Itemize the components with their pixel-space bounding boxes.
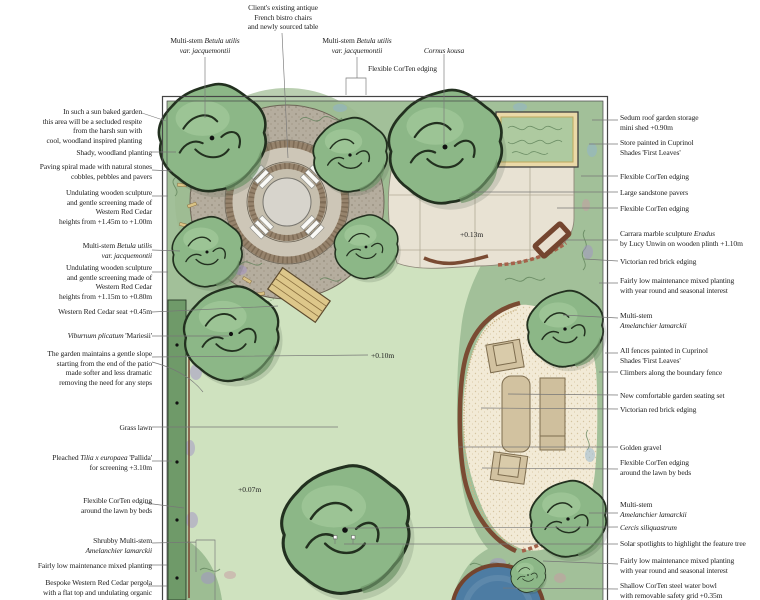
level-measurement: +0.10m	[371, 351, 394, 360]
label-italic: Viburnum plicatum	[68, 331, 126, 340]
label-betula-top-right: Multi-stem Betula utilis var. jacquemont…	[322, 36, 391, 55]
label-seating-set: New comfortable garden seating set	[620, 391, 724, 401]
label-carrara-sculpture: Carrara marble sculpture Eradus by Lucy …	[620, 229, 743, 248]
label-text2: 'Mariesii'	[125, 331, 152, 340]
label-text: Flexible CorTen edging	[620, 204, 689, 213]
label-pleached-tilia: Pleached Tilia x europaea 'Pallida' for …	[52, 453, 152, 472]
label-text: Pleached	[52, 453, 80, 462]
label-viburnum: Viburnum plicatum 'Mariesii'	[68, 331, 152, 341]
label-text: Paving spiral made with natural stones c…	[40, 162, 152, 181]
label-text: Fairly low maintenance mixed planting wi…	[620, 276, 734, 295]
label-text: New comfortable garden seating set	[620, 391, 724, 400]
label-text: Flexible CorTen edging	[620, 172, 689, 181]
label-text: Climbers along the boundary fence	[620, 368, 722, 377]
label-text: Shallow CorTen steel water bowl with rem…	[620, 581, 722, 600]
label-text: Client's existing antique French bistro …	[248, 3, 318, 31]
label-text: Golden gravel	[620, 443, 661, 452]
label-betula-left: Multi-stem Betula utilis var. jacquemont…	[83, 241, 152, 260]
label-shady-woodland: Shady, woodland planting	[76, 148, 152, 158]
label-sedum-shed: Sedum roof garden storage mini shed +0.9…	[620, 113, 699, 132]
label-italic: Tilia x europaea	[80, 453, 129, 462]
label-text: Shrubby Multi-stem	[93, 536, 152, 545]
label-gentle-slope-note: The garden maintains a gentle slope star…	[47, 349, 152, 388]
label-italic: Amelanchier lamarckii	[620, 321, 687, 330]
label-text: Victorian red brick edging	[620, 257, 696, 266]
label-text: All fences painted in Cuprinol Shades 'F…	[620, 346, 708, 365]
label-wooden-sculpture-2: Undulating wooden sculpture and gentle s…	[59, 263, 152, 302]
label-cedar-pergola: Bespoke Western Red Cedar pergola with a…	[43, 578, 152, 597]
label-brick-edging-2: Victorian red brick edging	[620, 405, 696, 415]
label-text: Flexible CorTen edging	[368, 64, 437, 73]
label-grass-lawn: Grass lawn	[119, 423, 152, 433]
label-text: Multi-stem	[620, 311, 652, 320]
label-text: Undulating wooden sculpture and gentle s…	[59, 188, 152, 226]
label-italic: Cornus kousa	[424, 46, 464, 55]
label-text: Bespoke Western Red Cedar pergola with a…	[43, 578, 152, 597]
label-text: Grass lawn	[119, 423, 152, 432]
label-text: Fairly low maintenance mixed planting wi…	[620, 556, 734, 575]
label-cercis: Cercis siliquastrum	[620, 523, 677, 533]
label-text: Western Red Cedar seat +0.45m	[58, 307, 152, 316]
label-fences-paint: All fences painted in Cuprinol Shades 'F…	[620, 346, 708, 365]
label-text: Fairly low maintenance mixed planting	[38, 561, 152, 570]
label-text: Undulating wooden sculpture and gentle s…	[59, 263, 152, 301]
label-text: Victorian red brick edging	[620, 405, 696, 414]
label-climbers: Climbers along the boundary fence	[620, 368, 722, 378]
label-betula-top-left: Multi-stem Betula utilis var. jacquemont…	[170, 36, 239, 55]
label-bistro-chairs: Client's existing antique French bistro …	[248, 3, 318, 32]
label-paving-spiral: Paving spiral made with natural stones c…	[40, 162, 152, 181]
label-text: Flexible CorTen edging around the lawn b…	[620, 458, 691, 477]
label-mixed-planting-left: Fairly low maintenance mixed planting	[38, 561, 152, 571]
label-cedar-seat: Western Red Cedar seat +0.45m	[58, 307, 152, 317]
label-italic: Cercis siliquastrum	[620, 523, 677, 532]
label-text: The garden maintains a gentle slope star…	[47, 349, 152, 387]
label-text: Carrara marble sculpture	[620, 229, 694, 238]
label-text: Multi-stem	[620, 500, 652, 509]
level-measurement: +0.13m	[460, 230, 483, 239]
level-measurement: +0.07m	[238, 485, 261, 494]
label-mixed-planting-r2: Fairly low maintenance mixed planting wi…	[620, 556, 734, 575]
storage-shed	[496, 112, 578, 167]
label-corten-lawn-right: Flexible CorTen edging around the lawn b…	[620, 458, 691, 477]
label-text: Store painted in Cuprinol Shades 'First …	[620, 138, 694, 157]
label-corten-lawn-left: Flexible CorTen edging around the lawn b…	[81, 496, 152, 515]
garden-design-plan-sheet: +0.13m +0.10m +0.07m Client's existing a…	[0, 0, 760, 600]
label-wooden-sculpture-1: Undulating wooden sculpture and gentle s…	[59, 188, 152, 227]
label-solar-spotlights: Solar spotlights to highlight the featur…	[620, 539, 746, 549]
label-corten-r2: Flexible CorTen edging	[620, 204, 689, 214]
label-text2: by Lucy Unwin on wooden plinth +1.10m	[620, 239, 743, 248]
label-mixed-planting-r1: Fairly low maintenance mixed planting wi…	[620, 276, 734, 295]
label-cornus-kousa: Cornus kousa	[424, 46, 464, 56]
label-text: Multi-stem	[170, 36, 204, 45]
label-text: Multi-stem	[83, 241, 117, 250]
label-italic: Amelanchier lamarckii	[620, 510, 687, 519]
label-water-bowl: Shallow CorTen steel water bowl with rem…	[620, 581, 722, 600]
label-sandstone-pavers: Large sandstone pavers	[620, 188, 688, 198]
label-text: Multi-stem	[322, 36, 356, 45]
label-text: Sedum roof garden storage mini shed +0.9…	[620, 113, 699, 132]
label-corten-top: Flexible CorTen edging	[368, 64, 437, 74]
pleached-tilia-screen	[168, 300, 186, 600]
bistro-table	[263, 178, 311, 226]
label-amelanchier-r2: Multi-stem Amelanchier lamarckii	[620, 500, 687, 519]
label-amelanchier-r1: Multi-stem Amelanchier lamarckii	[620, 311, 687, 330]
label-text: In such a sun baked garden this area wil…	[43, 107, 142, 145]
label-italic: Eradus	[694, 229, 715, 238]
label-text: Large sandstone pavers	[620, 188, 688, 197]
label-italic: Amelanchier lamarckii	[85, 546, 152, 555]
label-brick-edging-1: Victorian red brick edging	[620, 257, 696, 267]
label-corten-r1: Flexible CorTen edging	[620, 172, 689, 182]
label-text: Shady, woodland planting	[76, 148, 152, 157]
label-shrubby-amelanchier: Shrubby Multi-stem Amelanchier lamarckii	[85, 536, 152, 555]
label-text: Flexible CorTen edging around the lawn b…	[81, 496, 152, 515]
label-sun-baked-note: In such a sun baked garden this area wil…	[43, 107, 142, 146]
label-text: Solar spotlights to highlight the featur…	[620, 539, 746, 548]
label-store-paint: Store painted in Cuprinol Shades 'First …	[620, 138, 694, 157]
label-golden-gravel: Golden gravel	[620, 443, 661, 453]
